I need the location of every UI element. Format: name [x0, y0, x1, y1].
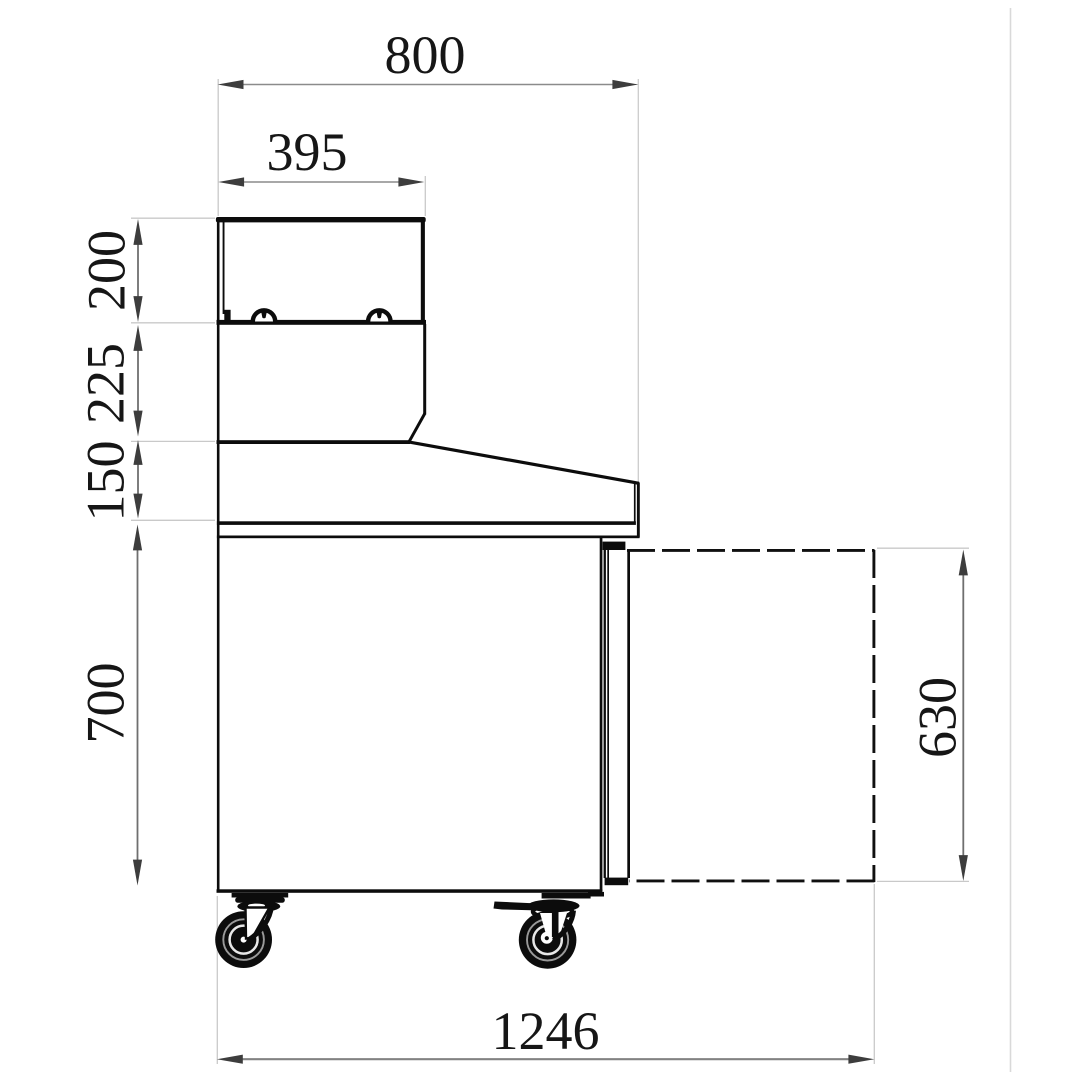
svg-text:150: 150 — [76, 441, 136, 522]
svg-text:395: 395 — [267, 122, 348, 182]
svg-text:800: 800 — [385, 25, 466, 85]
svg-text:1246: 1246 — [492, 1001, 600, 1061]
svg-text:700: 700 — [76, 663, 136, 744]
svg-text:200: 200 — [77, 230, 137, 311]
svg-text:630: 630 — [908, 677, 968, 758]
svg-text:225: 225 — [76, 343, 136, 424]
